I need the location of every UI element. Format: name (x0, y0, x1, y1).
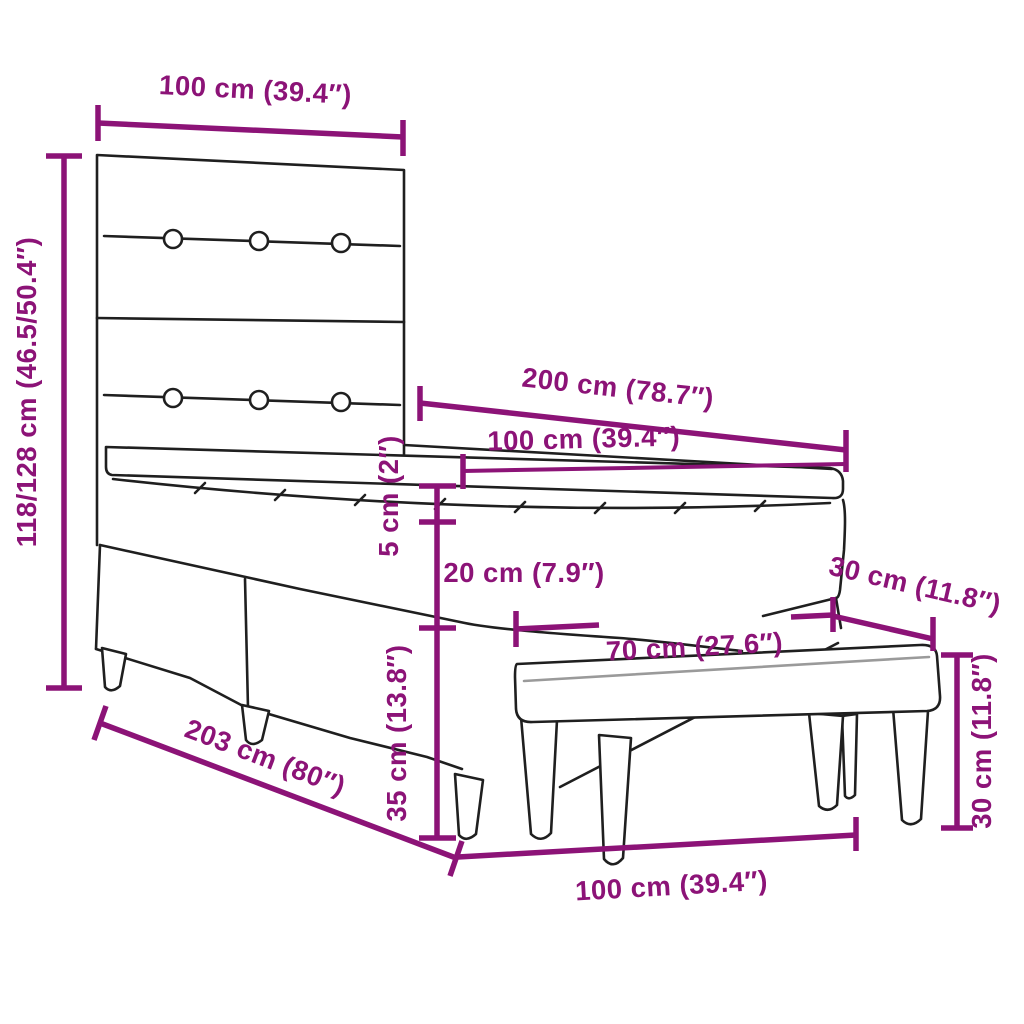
bench-leg (521, 717, 557, 839)
bench-leg (599, 735, 631, 864)
dim-label-bed-length: 200 cm (78.7″) (520, 362, 715, 414)
dimension-bench-total-length (458, 817, 856, 857)
headboard-button-icon (332, 234, 350, 252)
dim-label-mattress-width: 100 cm (39.4″) (487, 420, 681, 456)
dimension-total-height (46, 156, 82, 688)
headboard (97, 155, 404, 545)
headboard-button-icon (164, 389, 182, 407)
dim-label-base-height: 35 cm (13.8″) (381, 644, 412, 821)
headboard-button-icon (164, 230, 182, 248)
dimension-diagram: 100 cm (39.4″) 118/128 cm (46.5/50.4″) 2… (0, 0, 1024, 1024)
dim-label-topper-height: 5 cm (2″) (373, 435, 404, 557)
dim-label-bench-total-length: 100 cm (39.4″) (574, 864, 768, 906)
bed-leg (455, 774, 483, 839)
dimension-headboard-width (98, 105, 403, 156)
bed-leg (102, 648, 126, 690)
dim-label-bench-height: 30 cm (11.8″) (966, 653, 997, 829)
headboard-button-icon (332, 393, 350, 411)
headboard-button-icon (250, 391, 268, 409)
bench-leg (893, 708, 928, 824)
dim-label-headboard-width: 100 cm (39.4″) (158, 69, 352, 110)
bench-illustration (515, 645, 940, 864)
dim-label-mattress-height: 20 cm (7.9″) (443, 557, 604, 588)
dim-label-total-height: 118/128 cm (46.5/50.4″) (11, 237, 42, 548)
dim-label-bench-depth: 30 cm (11.8″) (826, 550, 1004, 620)
bench-leg (809, 713, 843, 810)
headboard-button-icon (250, 232, 268, 250)
bed-leg (842, 714, 857, 798)
dimension-height-stack (419, 486, 456, 838)
